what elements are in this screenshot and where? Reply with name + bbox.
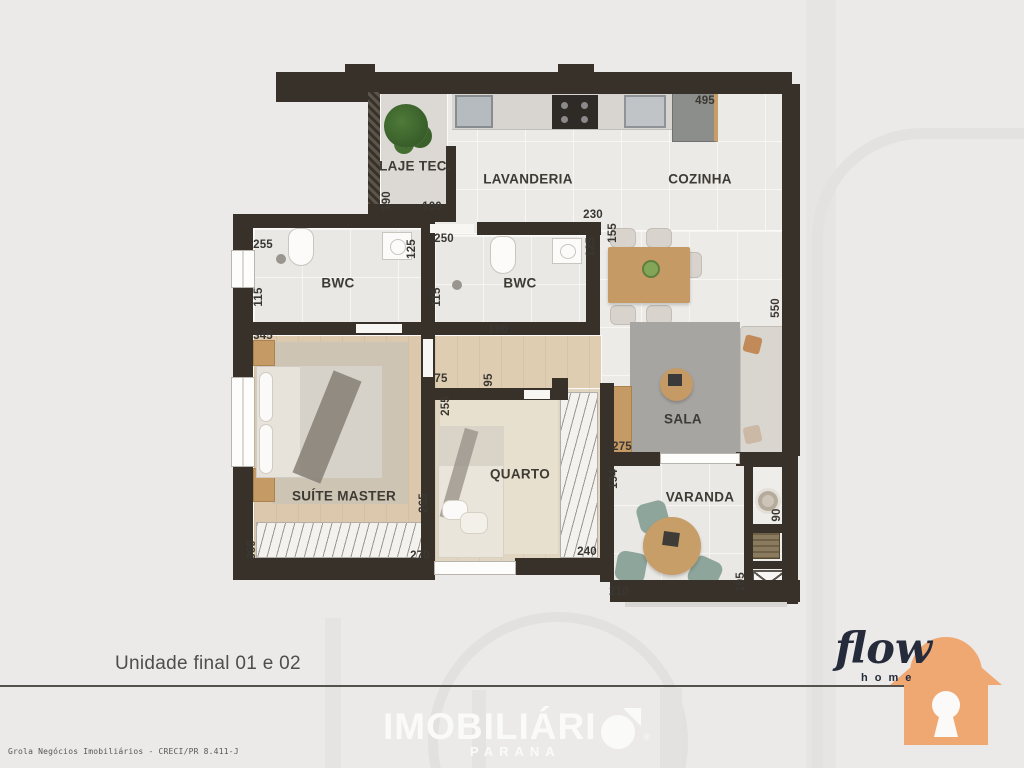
dimension-label: 155 <box>607 223 619 243</box>
dimension-label: 125 <box>585 237 597 257</box>
dimension-label: 190 <box>381 191 393 211</box>
dimension-label: 265 <box>418 493 430 513</box>
dimension-label: 345 <box>253 330 273 342</box>
credit-text: Grola Negócios Imobiliários - CRECI/PR 8… <box>8 747 239 756</box>
dimension-label: 240 <box>577 546 597 558</box>
dimension-label: 90 <box>771 508 783 521</box>
dimension-label: 95 <box>483 373 495 386</box>
dimension-label: 180 <box>488 324 508 336</box>
dimension-label: 105 <box>735 572 747 592</box>
divider-line <box>0 685 948 687</box>
dimension-label: 270 <box>410 550 430 562</box>
dimension-label: 250 <box>434 233 454 245</box>
flow-logo-sub: home <box>861 672 918 684</box>
dimension-label: 495 <box>695 95 715 107</box>
dimension-label: 255 <box>440 396 452 416</box>
agency-name: IMOBILIÁRI <box>383 706 596 748</box>
dimension-label: 194 <box>608 469 620 489</box>
dimension-label: 230 <box>583 209 603 221</box>
registered-mark: ® <box>643 732 651 742</box>
dimension-label: 360 <box>246 540 258 560</box>
unit-title: Unidade final 01 e 02 <box>115 653 301 675</box>
dimension-label: 115 <box>431 287 443 306</box>
agency-subtitle: PARANA <box>470 744 561 759</box>
dimension-label: 550 <box>770 298 782 318</box>
dimension-label: 100 <box>422 201 442 213</box>
flow-logo: flow <box>835 624 932 674</box>
floorplan-canvas: LAJE TEC.LAVANDERIACOZINHABWCBWCSUÍTE MA… <box>0 0 1024 768</box>
dimension-label: 75 <box>434 373 447 385</box>
dimension-label: 115 <box>253 287 265 306</box>
dimension-label: 125 <box>406 239 418 259</box>
agency-mark-icon <box>599 706 641 752</box>
dimension-label: 275 <box>612 441 632 453</box>
dimension-label: 210 <box>609 586 629 598</box>
dimension-label: 255 <box>253 239 273 251</box>
